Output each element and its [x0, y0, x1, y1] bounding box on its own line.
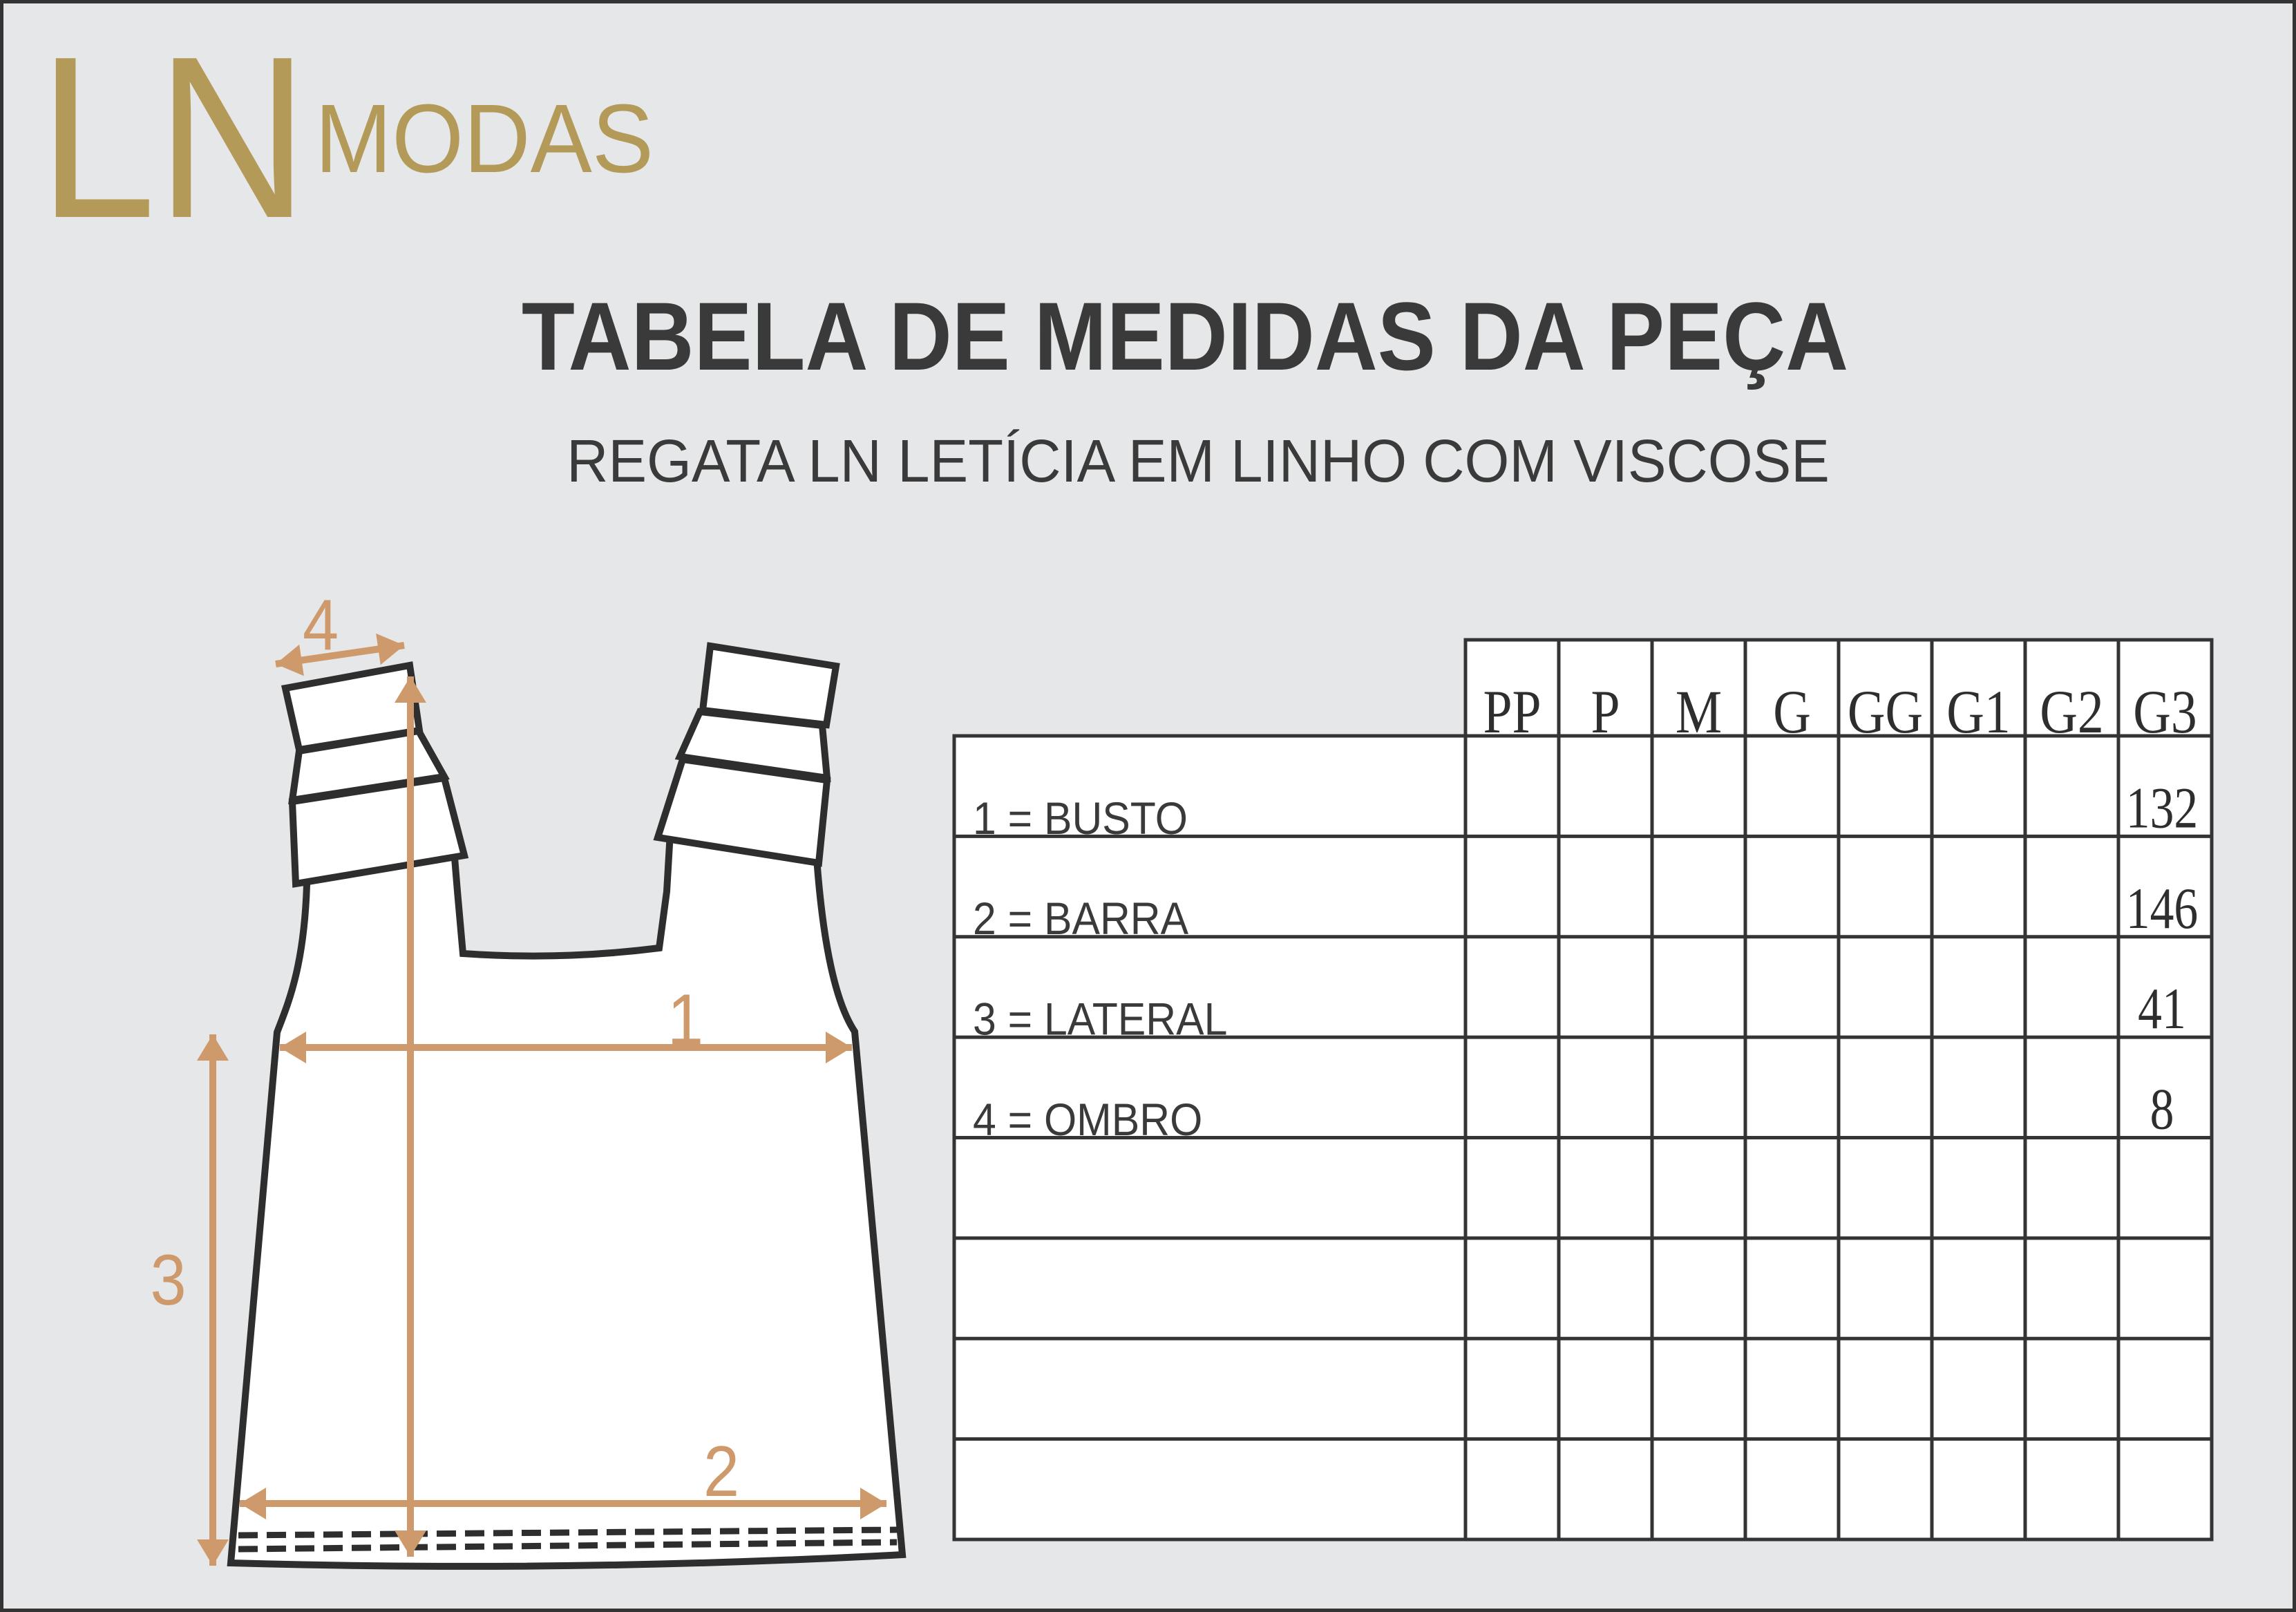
svg-text:GG: GG: [1848, 677, 1923, 746]
svg-text:1: 1: [667, 978, 703, 1059]
svg-text:P: P: [1591, 677, 1620, 746]
svg-text:132: 132: [2126, 775, 2199, 840]
svg-text:TABELA DE MEDIDAS DA PEÇA: TABELA DE MEDIDAS DA PEÇA: [522, 283, 1848, 391]
svg-text:2 = BARRA: 2 = BARRA: [973, 894, 1189, 945]
svg-text:G: G: [1773, 677, 1811, 746]
svg-text:41: 41: [2138, 976, 2186, 1041]
svg-text:8: 8: [2150, 1077, 2174, 1141]
svg-text:146: 146: [2126, 875, 2199, 940]
svg-text:4 = OMBRO: 4 = OMBRO: [973, 1095, 1202, 1146]
svg-text:4: 4: [303, 584, 339, 665]
svg-text:2: 2: [703, 1430, 739, 1511]
svg-text:G1: G1: [1946, 677, 2010, 746]
svg-text:MODAS: MODAS: [315, 85, 654, 193]
svg-text:3 = LATERAL: 3 = LATERAL: [973, 994, 1227, 1045]
svg-text:G2: G2: [2040, 677, 2103, 746]
svg-text:3: 3: [150, 1239, 186, 1320]
svg-text:REGATA LN LETÍCIA EM LINHO COM: REGATA LN LETÍCIA EM LINHO COM VISCOSE: [567, 428, 1830, 495]
svg-text:M: M: [1676, 677, 1722, 746]
svg-text:G3: G3: [2133, 677, 2197, 746]
svg-text:1 = BUSTO: 1 = BUSTO: [973, 794, 1188, 844]
svg-text:PP: PP: [1483, 677, 1541, 746]
svg-text:LN: LN: [39, 8, 309, 266]
